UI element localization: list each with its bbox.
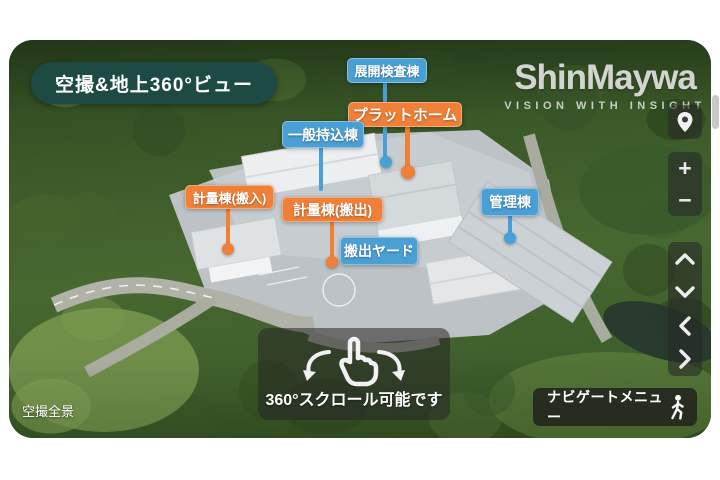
label-general-dropoff[interactable]: 一般持込棟 <box>282 121 364 148</box>
label-weighing-inbound[interactable]: 計量棟(搬入) <box>185 185 274 209</box>
chevron-up-icon <box>675 253 695 265</box>
chevron-down-icon <box>675 286 695 298</box>
viewer-stage: 展開検査棟 プラットホーム 一般持込棟 計量棟(搬入) 計量棟(搬出) 搬出ヤー… <box>0 0 720 480</box>
map-pin-icon <box>675 111 695 133</box>
chevron-right-icon <box>679 349 691 369</box>
view-mode-badge: 空撮&地上360°ビュー <box>31 62 277 104</box>
label-weighing-outbound[interactable]: 計量棟(搬出) <box>282 197 383 222</box>
pan-left-button[interactable] <box>668 313 702 339</box>
marker-dot-weigh-out <box>326 256 338 268</box>
navigate-menu-button[interactable]: ナビゲートメニュー <box>533 388 697 426</box>
gesture-hint-text: 360°スクロール可能です <box>265 386 442 410</box>
marker-dot-admin <box>504 232 516 244</box>
map-pin-button[interactable] <box>668 105 702 139</box>
rotate-hand-icon <box>279 334 429 388</box>
chevron-left-icon <box>679 316 691 336</box>
marker-dot-weigh-in <box>222 243 234 255</box>
pan-up-button[interactable] <box>668 246 702 272</box>
zoom-controls: + − <box>668 152 702 216</box>
label-shipping-yard[interactable]: 搬出ヤード <box>340 237 418 265</box>
gesture-hint-overlay: 360°スクロール可能です <box>258 328 450 420</box>
navigate-menu-label: ナビゲートメニュー <box>547 387 667 427</box>
zoom-out-button[interactable]: − <box>668 184 702 216</box>
pan-right-button[interactable] <box>668 346 702 372</box>
zoom-in-button[interactable]: + <box>668 152 702 184</box>
page-scrollbar-thumb[interactable] <box>712 95 719 129</box>
marker-dot-platform <box>401 165 415 179</box>
label-platform[interactable]: プラットホーム <box>348 102 462 127</box>
panorama-viewport[interactable]: 展開検査棟 プラットホーム 一般持込棟 計量棟(搬入) 計量棟(搬出) 搬出ヤー… <box>9 40 711 438</box>
scene-caption: 空撮全景 <box>22 401 74 420</box>
label-admin-building[interactable]: 管理棟 <box>481 188 539 216</box>
label-inspection-building[interactable]: 展開検査棟 <box>347 58 427 83</box>
walking-person-icon <box>667 393 687 421</box>
pan-controls <box>668 242 702 376</box>
pan-down-button[interactable] <box>668 279 702 305</box>
marker-dot-inspection <box>380 156 392 168</box>
leader-line-general <box>319 147 323 191</box>
